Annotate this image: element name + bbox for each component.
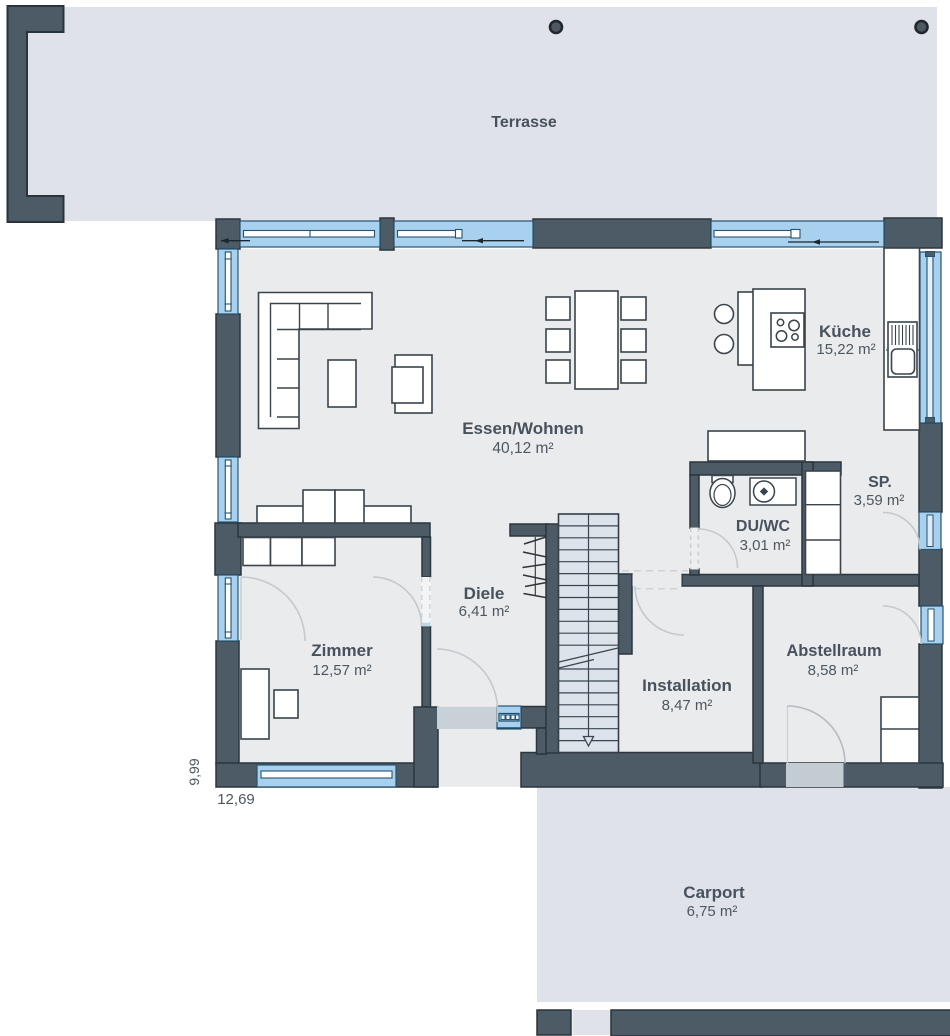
svg-text:3,01 m²: 3,01 m² (740, 537, 791, 554)
svg-text:Essen/Wohnen: Essen/Wohnen (462, 419, 584, 438)
svg-text:Küche: Küche (819, 322, 871, 341)
svg-text:Zimmer: Zimmer (311, 641, 373, 660)
svg-text:Abstellraum: Abstellraum (786, 642, 881, 660)
svg-text:Diele: Diele (464, 584, 505, 603)
svg-text:8,47 m²: 8,47 m² (662, 697, 713, 714)
svg-text:Terrasse: Terrasse (491, 114, 557, 131)
svg-text:Installation: Installation (642, 676, 732, 695)
svg-text:8,58 m²: 8,58 m² (808, 662, 859, 679)
svg-text:SP.: SP. (868, 474, 892, 491)
svg-text:12,57 m²: 12,57 m² (312, 662, 371, 679)
svg-text:DU/WC: DU/WC (736, 518, 791, 535)
svg-text:6,75 m²: 6,75 m² (687, 903, 738, 920)
svg-text:9,99: 9,99 (186, 758, 202, 785)
svg-text:40,12 m²: 40,12 m² (492, 440, 553, 457)
svg-text:6,41 m²: 6,41 m² (459, 603, 510, 620)
svg-text:3,59 m²: 3,59 m² (854, 492, 905, 509)
svg-text:12,69: 12,69 (217, 791, 255, 808)
svg-text:Carport: Carport (683, 883, 745, 902)
svg-text:15,22 m²: 15,22 m² (816, 341, 875, 358)
